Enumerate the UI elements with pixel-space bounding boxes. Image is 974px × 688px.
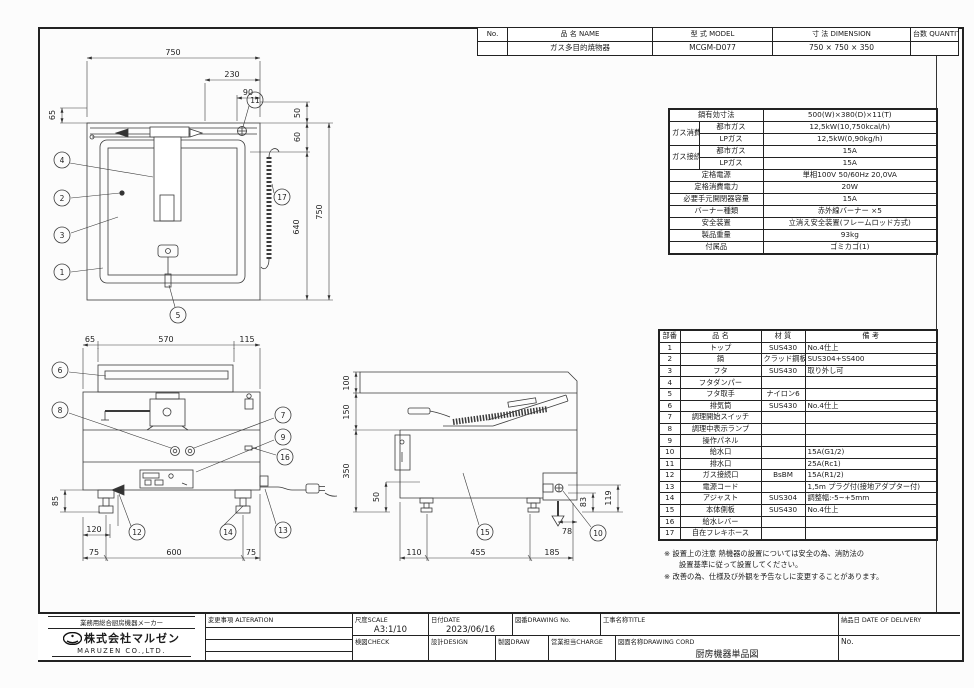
product-dimension: 750 × 750 × 350 bbox=[773, 42, 911, 56]
drawing-no-label: 図番DRAWING No. bbox=[513, 614, 600, 625]
drawing-name-label: 図面名称DRAWING CORD bbox=[616, 636, 838, 647]
water-inlet-symbol bbox=[237, 126, 247, 136]
water-supply-lever bbox=[245, 394, 253, 409]
draw-label: 製図DRAW bbox=[496, 636, 548, 647]
dim-label: 78 bbox=[562, 527, 572, 536]
flexible-hose-hook bbox=[269, 149, 279, 157]
parts-row: 1トップSUS430No.4仕上 bbox=[659, 342, 937, 354]
spec-pan-size-label: 鍋有効寸法 bbox=[669, 109, 763, 122]
product-model: MCGM-D077 bbox=[653, 42, 773, 56]
dim-label: 455 bbox=[470, 548, 485, 557]
parts-row: 7調理開始スイッチ bbox=[659, 412, 937, 424]
delivery-cell: 納品日 DATE OF DELIVERY bbox=[838, 614, 960, 635]
dim-label: 350 bbox=[342, 463, 351, 478]
parts-col-no: 部番 bbox=[659, 330, 680, 342]
side-view: 100 150 350 50 110 455 185 78 83 119 15 bbox=[342, 372, 623, 561]
dim-label: 75 bbox=[89, 548, 99, 557]
spec-gas-consumption-label: ガス消費量 bbox=[669, 122, 699, 146]
balloon-17: 17 bbox=[277, 193, 287, 202]
col-quantity: 台数 QUANTITY bbox=[911, 28, 959, 42]
parts-row: 2鍋クラッド鋼板SUS304+SS400 bbox=[659, 354, 937, 366]
dim-label: 65 bbox=[85, 335, 95, 344]
balloon-6: 6 bbox=[58, 366, 63, 375]
power-cord-plug bbox=[260, 484, 337, 496]
plate-handle-side bbox=[408, 408, 450, 417]
note-line: ※ 設置上の注意 熱機器の設置については安全の為、消防法の bbox=[664, 548, 954, 559]
dim-label: 640 bbox=[292, 219, 301, 234]
dim-label: 50 bbox=[372, 492, 381, 502]
technical-drawing-views: 750 230 90 65 50 60 640 750 bbox=[38, 27, 662, 612]
spec-connection-lp: 15A bbox=[763, 158, 937, 170]
spec-gas-connection-label: ガス接続口 bbox=[669, 146, 699, 170]
parts-col-name: 品 名 bbox=[680, 330, 761, 342]
drain-outlet bbox=[260, 476, 268, 486]
design-label: 設計DESIGN bbox=[429, 636, 495, 647]
check-cell: 検図CHECK bbox=[352, 636, 428, 660]
dim-label: 750 bbox=[165, 48, 180, 57]
charge-label: 営業担当CHARGE bbox=[549, 636, 615, 647]
parts-row: 3フタSUS430取り外し可 bbox=[659, 365, 937, 377]
spec-connection-city: 15A bbox=[763, 146, 937, 158]
spec-weight: 93kg bbox=[763, 230, 937, 242]
lid-handle bbox=[158, 245, 178, 257]
title-label: 工事名称TITLE bbox=[601, 614, 838, 625]
spec-burner-label: バーナー種類 bbox=[669, 206, 763, 218]
indicator-lamp bbox=[186, 447, 195, 456]
side-lever-box bbox=[395, 435, 410, 470]
gas-cock bbox=[543, 484, 563, 492]
spec-breaker: 15A bbox=[763, 194, 937, 206]
alteration-empty-row bbox=[206, 640, 352, 652]
no-label: No. bbox=[839, 636, 960, 647]
note-line: ※ 改善の為、仕様及び外観を予告なしに変更することがあります。 bbox=[664, 571, 954, 582]
alteration-section: 変更事項 ALTERATION bbox=[205, 614, 352, 660]
company-tagline: 業務用総合厨房機器メーカー bbox=[48, 616, 195, 629]
balloon-16: 16 bbox=[280, 453, 290, 462]
side-balloons: 15 10 bbox=[477, 524, 606, 541]
dim-label: 570 bbox=[158, 335, 173, 344]
check-label: 検図CHECK bbox=[353, 636, 428, 647]
company-block: 業務用総合厨房機器メーカー 株式会社マルゼン MARUZEN CO.,LTD. bbox=[38, 614, 205, 660]
spec-lp-gas-label: LPガス bbox=[699, 134, 763, 146]
date-value: 2023/06/16 bbox=[429, 625, 512, 635]
parts-row: 6排気筒SUS430No.4仕上 bbox=[659, 400, 937, 412]
dim-label: 115 bbox=[239, 335, 254, 344]
dim-label: 83 bbox=[579, 497, 588, 507]
control-panel bbox=[140, 470, 193, 488]
balloon-12: 12 bbox=[132, 528, 142, 537]
parts-row: 8調理中表示ランプ bbox=[659, 423, 937, 435]
drawing-sheet-page: { "title_table": { "headers": {"no":"No.… bbox=[0, 0, 974, 688]
scale-label: 尺度SCALE bbox=[353, 614, 428, 625]
dim-label: 119 bbox=[604, 490, 613, 505]
parts-row: 12ガス接続口BsBM15A(R1/2) bbox=[659, 470, 937, 482]
dim-label: 230 bbox=[224, 70, 239, 79]
parts-col-material: 材 質 bbox=[761, 330, 805, 342]
scale-value: A3:1/10 bbox=[353, 625, 428, 635]
spec-pan-size: 500(W)×380(D)×11(T) bbox=[763, 109, 937, 122]
dim-label: 750 bbox=[315, 204, 324, 219]
drawing-name-value: 厨房機器単品図 bbox=[616, 647, 838, 660]
balloon-7: 7 bbox=[281, 411, 286, 420]
dim-label: 120 bbox=[86, 525, 101, 534]
dim-label: 75 bbox=[246, 548, 256, 557]
parts-row: 14アジャストSUS304調整幅:-5~+5mm bbox=[659, 493, 937, 505]
spec-power: 単相100V 50/60Hz 20,0VA bbox=[763, 170, 937, 182]
flow-arrow-right bbox=[190, 129, 202, 137]
balloon-11: 11 bbox=[250, 96, 260, 105]
maruzen-logo-icon bbox=[63, 632, 82, 645]
parts-row: 15本体側板SUS430No.4仕上 bbox=[659, 504, 937, 516]
spec-power-consumption: 20W bbox=[763, 182, 937, 194]
balloon-5: 5 bbox=[176, 311, 181, 320]
alteration-label: 変更事項 ALTERATION bbox=[206, 614, 352, 628]
installation-notes: ※ 設置上の注意 熱機器の設置については安全の為、消防法の 設置基準に従って設置… bbox=[664, 548, 954, 582]
balloon-2: 2 bbox=[60, 194, 65, 203]
parts-header-row: 部番 品 名 材 質 備 考 bbox=[659, 330, 937, 342]
front-balloons: 6 8 7 9 16 12 14 13 bbox=[52, 362, 293, 540]
date-cell: 日付DATE 2023/06/16 bbox=[428, 614, 512, 635]
title-block: 業務用総合厨房機器メーカー 株式会社マルゼン MARUZEN CO.,LTD. … bbox=[38, 612, 960, 660]
gas-connection-box bbox=[543, 473, 577, 500]
company-name-en: MARUZEN CO.,LTD. bbox=[52, 647, 191, 657]
dim-label: 65 bbox=[48, 110, 57, 120]
spec-city-gas-label: 都市ガス bbox=[699, 122, 763, 134]
parts-row: 5フタ取手ナイロン6 bbox=[659, 388, 937, 400]
balloon-15: 15 bbox=[480, 528, 490, 537]
balloon-3: 3 bbox=[60, 231, 65, 240]
drain-plug bbox=[165, 274, 171, 287]
flow-arrow-left bbox=[116, 129, 128, 137]
spec-connection-lp-label: LPガス bbox=[699, 158, 763, 170]
dim-label: 60 bbox=[293, 132, 302, 142]
spec-safety: 立消え安全装置(フレームロッド方式) bbox=[763, 218, 937, 230]
spec-safety-label: 安全装置 bbox=[669, 218, 763, 230]
alteration-empty-row bbox=[206, 652, 352, 660]
front-view: 65 570 115 85 120 75 600 75 bbox=[51, 335, 337, 561]
dim-label: 150 bbox=[342, 404, 351, 419]
dim-label: 85 bbox=[51, 496, 60, 506]
parts-row: 17自在フレキホース bbox=[659, 528, 937, 540]
dim-label: 185 bbox=[544, 548, 559, 557]
plan-dimensions bbox=[60, 58, 333, 300]
spec-power-consumption-label: 定格消費電力 bbox=[669, 182, 763, 194]
dim-label: 600 bbox=[166, 548, 181, 557]
start-switch bbox=[171, 447, 180, 456]
dim-label: 50 bbox=[293, 108, 302, 118]
balloon-10: 10 bbox=[593, 529, 603, 538]
balloon-4: 4 bbox=[60, 156, 65, 165]
company-name-row: 株式会社マルゼン bbox=[38, 630, 205, 646]
spec-weight-label: 製品重量 bbox=[669, 230, 763, 242]
spec-consumption-lp: 12,5kW(0,90kg/h) bbox=[763, 134, 937, 146]
parts-row: 13電源コード1,5m プラグ付(接地アダプター付) bbox=[659, 481, 937, 493]
parts-row: 16給水レバー bbox=[659, 516, 937, 528]
col-model: 型 式 MODEL bbox=[653, 28, 773, 42]
burner-plate-side bbox=[443, 395, 568, 426]
company-name: 株式会社マルゼン bbox=[84, 630, 180, 646]
dim-label: 110 bbox=[406, 548, 421, 557]
lid-damper-plate bbox=[154, 137, 181, 221]
drawing-name-cell: 図面名称DRAWING CORD 厨房機器単品図 bbox=[615, 636, 838, 660]
specification-table: 鍋有効寸法 500(W)×380(D)×11(T) ガス消費量 都市ガス 12,… bbox=[668, 108, 938, 255]
delivery-label: 納品日 DATE OF DELIVERY bbox=[839, 614, 960, 625]
design-cell: 設計DESIGN bbox=[428, 636, 495, 660]
balloon-1: 1 bbox=[60, 268, 65, 277]
scale-cell: 尺度SCALE A3:1/10 bbox=[352, 614, 428, 635]
parts-row: 4フタダンパー bbox=[659, 377, 937, 389]
legs-side bbox=[420, 498, 540, 512]
charge-cell: 営業担当CHARGE bbox=[548, 636, 615, 660]
water-faucet-assembly bbox=[101, 393, 188, 430]
spec-burner: 赤外線バーナー ×5 bbox=[763, 206, 937, 218]
balloon-8: 8 bbox=[58, 406, 63, 415]
balloon-9: 9 bbox=[281, 433, 286, 442]
balloon-14: 14 bbox=[223, 528, 233, 537]
spec-accessories: ゴミカゴ(1) bbox=[763, 242, 937, 255]
spec-accessories-label: 付属品 bbox=[669, 242, 763, 255]
draw-cell: 製図DRAW bbox=[495, 636, 548, 660]
dim-label: 100 bbox=[342, 375, 351, 390]
spec-power-label: 定格電源 bbox=[669, 170, 763, 182]
title-cell: 工事名称TITLE bbox=[600, 614, 838, 635]
spec-breaker-label: 必要手元開閉器容量 bbox=[669, 194, 763, 206]
parts-row: 9操作パネル bbox=[659, 435, 937, 447]
spec-connection-city-label: 都市ガス bbox=[699, 146, 763, 158]
parts-col-note: 備 考 bbox=[805, 330, 937, 342]
date-label: 日付DATE bbox=[429, 614, 512, 625]
balloon-13: 13 bbox=[278, 526, 288, 535]
parts-list-table: 部番 品 名 材 質 備 考 1トップSUS430No.4仕上 2鍋クラッド鋼板… bbox=[658, 329, 938, 541]
plan-view: 750 230 90 65 50 60 640 750 bbox=[48, 48, 333, 323]
no-cell: No. bbox=[838, 636, 960, 660]
parts-row: 11排水口25A(Rc1) bbox=[659, 458, 937, 470]
product-quantity bbox=[911, 42, 959, 56]
parts-row: 10給水口15A(G1/2) bbox=[659, 446, 937, 458]
drawing-no-cell: 図番DRAWING No. bbox=[512, 614, 600, 635]
alteration-empty-row bbox=[206, 628, 352, 640]
spec-consumption-city: 12,5kW(10,750kcal/h) bbox=[763, 122, 937, 134]
col-dimension: 寸 法 DIMENSION bbox=[773, 28, 911, 42]
exhaust-duct bbox=[98, 365, 233, 392]
note-line: 設置基準に従って設置してください。 bbox=[664, 559, 954, 570]
